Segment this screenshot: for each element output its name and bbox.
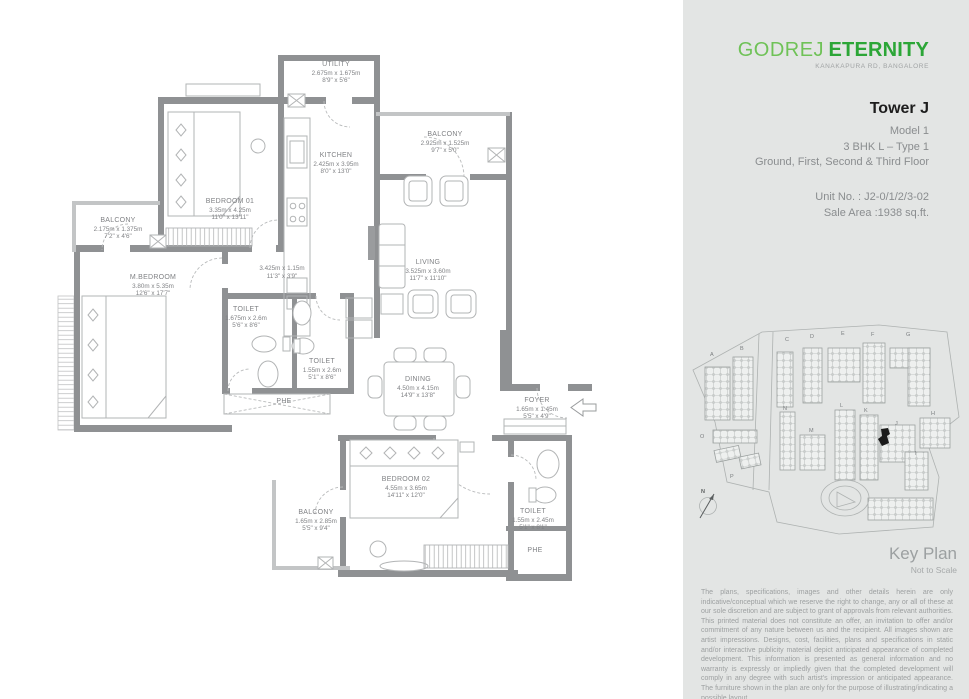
room-label-toilet2: TOILET 1.55m x 2.6m 5'1" x 8'6" bbox=[303, 358, 341, 382]
room-label-kitchen: KITCHEN 2.425m x 3.95m 8'0" x 13'0" bbox=[313, 152, 358, 176]
room-label-dining: DINING 4.50m x 4.15m 14'9" x 13'8" bbox=[397, 376, 439, 400]
brand-subtitle: KANAKAPURA RD, BANGALORE bbox=[738, 64, 929, 71]
room-label-bedroom01: BEDROOM 01 3.35m x 4.25m 11'0" x 13'11" bbox=[206, 198, 254, 222]
model-line-3: Ground, First, Second & Third Floor bbox=[755, 155, 929, 171]
room-label-balcony-left: BALCONY 2.175m x 1.375m 7'2" x 4'6" bbox=[94, 217, 143, 241]
room-label-mbedroom: M.BEDROOM 3.80m x 5.35m 12'6" x 17'7" bbox=[130, 274, 176, 298]
tower-title: Tower J bbox=[870, 100, 929, 118]
svg-text:P: P bbox=[730, 474, 734, 480]
floor-plan-area: UTILITY 2.675m x 1.675m 8'9" x 5'6" BALC… bbox=[0, 0, 683, 699]
duct-box-balcony-top bbox=[488, 148, 505, 162]
room-label-balcony-top: BALCONY 2.925m x 1.525m 9'7" x 5'0" bbox=[421, 131, 470, 155]
key-plan-title: Key Plan bbox=[889, 544, 957, 564]
model-line-2: 3 BHK L – Type 1 bbox=[755, 140, 929, 156]
room-label-balcony-bottom: BALCONY 1.65m x 2.85m 5'5" x 9'4" bbox=[295, 509, 337, 533]
svg-text:O: O bbox=[700, 434, 705, 440]
room-label-passage: 3.425m x 1.15m 11'3" x 3'9" bbox=[259, 265, 304, 281]
svg-text:A: A bbox=[710, 352, 714, 358]
room-label-foyer: FOYER 1.65m x 1.45m 5'5" x 4'9" bbox=[516, 397, 558, 421]
furniture-bedroom01 bbox=[166, 112, 265, 246]
svg-text:J: J bbox=[895, 421, 898, 427]
furniture-living bbox=[368, 176, 476, 318]
svg-text:B: B bbox=[740, 346, 744, 352]
brand-name-light: GODREJ bbox=[738, 39, 824, 61]
svg-text:M: M bbox=[809, 428, 814, 434]
key-plan-map: A B C D E F G N M L K J H I O P bbox=[689, 322, 961, 547]
model-line-1: Model 1 bbox=[755, 124, 929, 140]
svg-text:E: E bbox=[841, 331, 845, 337]
svg-text:G: G bbox=[906, 332, 910, 338]
svg-text:H: H bbox=[931, 411, 935, 417]
brand-logo: GODREJ ETERNITY KANAKAPURA RD, BANGALORE bbox=[738, 40, 929, 71]
brand-name-bold: ETERNITY bbox=[829, 39, 930, 61]
svg-text:C: C bbox=[785, 337, 789, 343]
room-label-toilet3: TOILET 1.55m x 2.45m 5'1" x 8'1" bbox=[512, 508, 554, 532]
furniture-bedroom02 bbox=[350, 440, 508, 571]
svg-text:D: D bbox=[810, 334, 814, 340]
room-label-living: LIVING 3.525m x 3.60m 11'7" x 11'10" bbox=[405, 259, 450, 283]
room-label-utility: UTILITY 2.675m x 1.675m 8'9" x 5'6" bbox=[312, 61, 361, 85]
site-green-area bbox=[821, 480, 869, 516]
unit-block: Unit No. : J2-0/1/2/3-02 Sale Area :1938… bbox=[815, 190, 929, 221]
entry-arrow-icon bbox=[571, 399, 596, 416]
model-block: Model 1 3 BHK L – Type 1 Ground, First, … bbox=[755, 124, 929, 171]
compass-north: N bbox=[700, 489, 717, 518]
info-panel: GODREJ ETERNITY KANAKAPURA RD, BANGALORE… bbox=[683, 0, 969, 699]
duct-box-balcony-left bbox=[150, 235, 166, 248]
brochure-page: UTILITY 2.675m x 1.675m 8'9" x 5'6" BALC… bbox=[0, 0, 969, 699]
room-label-toilet1: TOILET 1.675m x 2.6m 5'6" x 8'6" bbox=[225, 306, 267, 330]
furniture-toilet1 bbox=[252, 336, 290, 387]
shaft-label-phe-bottom: PHE bbox=[527, 547, 542, 556]
sale-area: Sale Area :1938 sq.ft. bbox=[815, 206, 929, 222]
key-plan-subtitle: Not to Scale bbox=[911, 565, 957, 575]
shaft-label-phe-mid: PHE bbox=[276, 398, 291, 407]
unit-number: Unit No. : J2-0/1/2/3-02 bbox=[815, 190, 929, 206]
furniture-mbedroom bbox=[82, 296, 166, 418]
room-label-bedroom02: BEDROOM 02 4.55m x 3.65m 14'11" x 12'0" bbox=[382, 476, 430, 500]
duct-box-balcony-bottom bbox=[318, 557, 333, 569]
svg-text:N: N bbox=[783, 406, 787, 412]
svg-text:K: K bbox=[864, 408, 868, 414]
furniture-toilet3 bbox=[529, 450, 559, 503]
disclaimer-text: The plans, specifications, images and ot… bbox=[701, 588, 953, 699]
svg-text:F: F bbox=[871, 332, 875, 338]
site-buildings bbox=[705, 343, 950, 520]
floor-plan-drawing bbox=[0, 0, 683, 699]
svg-text:L: L bbox=[840, 403, 843, 409]
compass-n-label: N bbox=[701, 489, 705, 495]
duct-box-kitchen bbox=[288, 94, 305, 107]
